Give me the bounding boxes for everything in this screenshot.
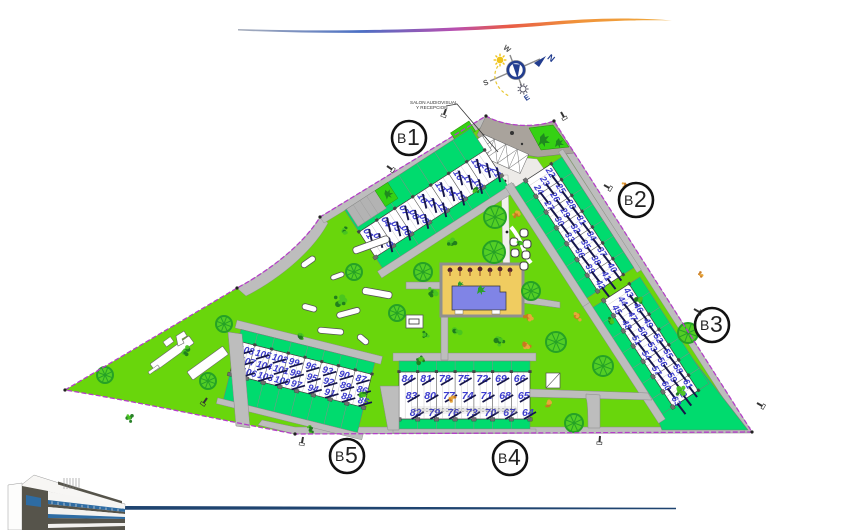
svg-text:B: B [397,130,406,146]
svg-text:B: B [700,317,709,333]
svg-text:2: 2 [634,186,647,212]
svg-text:5: 5 [345,442,358,468]
svg-text:B: B [335,448,344,464]
svg-text:3: 3 [710,311,723,337]
svg-text:Y RECEPCION: Y RECEPCION [416,105,448,110]
svg-text:B: B [498,450,507,466]
svg-text:1: 1 [407,124,420,150]
svg-text:B: B [624,192,633,208]
svg-text:4: 4 [508,444,521,470]
